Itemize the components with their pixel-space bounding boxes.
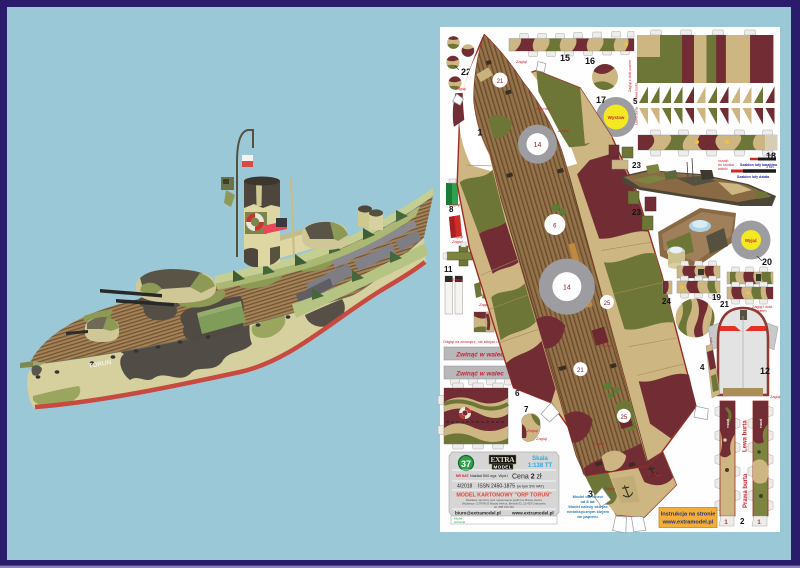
svg-text:Skala: Skala: [532, 456, 548, 462]
svg-text:Wystaw: Wystaw: [608, 115, 625, 120]
svg-text:Mocniej: Mocniej: [536, 106, 550, 111]
svg-text:Zagiął z dokł czarne: Zagiął z dokł czarne: [628, 60, 632, 92]
svg-text:23: 23: [632, 208, 641, 217]
svg-text:Cena 2 zł: Cena 2 zł: [512, 474, 542, 481]
svg-text:Prawa burta: Prawa burta: [743, 473, 749, 508]
svg-text:Zagiął: Zagiął: [592, 441, 604, 446]
svg-text:Zagiął: Zagiął: [451, 277, 463, 282]
svg-text:1: 1: [724, 519, 728, 526]
svg-text:24: 24: [662, 297, 671, 306]
svg-text:Nakład 500 egz. Wyd.I: Nakład 500 egz. Wyd.I: [470, 474, 508, 478]
svg-text:4: 4: [700, 363, 705, 372]
svg-text:Zagiął: Zagiął: [647, 472, 659, 477]
svg-text:2: 2: [740, 517, 745, 526]
svg-text:Wyjąć: Wyjąć: [745, 238, 758, 243]
svg-text:Bornel: Bornel: [601, 343, 613, 348]
svg-text:12: 12: [760, 366, 770, 376]
svg-text:NR KAT.: NR KAT.: [456, 474, 469, 478]
svg-text:wchanał: wchanał: [454, 520, 465, 524]
svg-text:www.extramodel.pl: www.extramodel.pl: [511, 511, 554, 516]
svg-text:4 szt.: 4 szt.: [766, 153, 775, 157]
svg-text:Zagiął: Zagiął: [770, 395, 780, 399]
svg-text:Zagiął: Zagiął: [451, 234, 463, 239]
svg-text:Zwinąć w walec: Zwinąć w walec: [455, 371, 504, 378]
svg-text:15: 15: [560, 53, 570, 63]
svg-text:Szablon lufy działa: Szablon lufy działa: [737, 175, 770, 179]
svg-text:4/2018: 4/2018: [457, 484, 473, 490]
svg-text:Zagiął: Zagiął: [603, 486, 615, 491]
svg-text:25: 25: [604, 301, 611, 307]
svg-text:ISSN 2450-1875: ISSN 2450-1875: [478, 484, 515, 490]
svg-text:Zwinąć w walec: Zwinąć w walec: [455, 352, 504, 359]
svg-text:17: 17: [596, 95, 606, 105]
svg-text:21: 21: [720, 300, 729, 309]
svg-text:Zagiął: Zagiął: [535, 436, 547, 441]
svg-text:Zagiął: Zagiął: [515, 59, 527, 64]
svg-text:21: 21: [497, 79, 504, 85]
svg-text:7: 7: [524, 405, 529, 414]
svg-text:Zagiął: Zagiął: [557, 128, 569, 133]
svg-text:1:138 TT: 1:138 TT: [528, 463, 553, 469]
svg-text:EXTRA: EXTRA: [491, 455, 516, 464]
svg-text:21: 21: [577, 368, 584, 374]
svg-text:Instrukcja na stronie: Instrukcja na stronie: [661, 512, 716, 518]
svg-text:tel. 888 155 310: tel. 888 155 310: [494, 505, 515, 509]
svg-text:Lewa burta: Lewa burta: [635, 107, 639, 125]
svg-text:1: 1: [477, 128, 482, 138]
svg-text:Prawa burta: Prawa burta: [635, 83, 639, 102]
svg-text:14: 14: [534, 142, 542, 149]
svg-text:37: 37: [461, 459, 471, 469]
svg-text:23: 23: [632, 161, 641, 170]
svg-text:wkleić: wkleić: [718, 167, 728, 171]
svg-text:do papieru.: do papieru.: [577, 514, 599, 519]
svg-text:Zagiął: Zagiął: [448, 202, 460, 207]
svg-text:www.extramodel.pl: www.extramodel.pl: [662, 520, 714, 526]
svg-text:razem: razem: [756, 309, 767, 313]
svg-text:Zagiął: Zagiął: [454, 86, 466, 91]
svg-text:16: 16: [585, 56, 595, 66]
svg-text:Zagiął: Zagiął: [526, 428, 538, 433]
svg-text:20: 20: [762, 257, 772, 267]
svg-text:14: 14: [563, 285, 571, 292]
svg-text:3 szt.: 3 szt.: [766, 165, 775, 169]
svg-text:11: 11: [444, 265, 453, 274]
svg-text:MODEL: MODEL: [494, 465, 512, 470]
svg-text:biuro@extramodel.pl: biuro@extramodel.pl: [455, 511, 501, 516]
svg-text:Lewa burta: Lewa burta: [743, 420, 749, 452]
svg-text:25: 25: [620, 415, 627, 421]
svg-text:1: 1: [757, 519, 761, 526]
svg-text:(w tym 5% VAT): (w tym 5% VAT): [517, 485, 545, 489]
